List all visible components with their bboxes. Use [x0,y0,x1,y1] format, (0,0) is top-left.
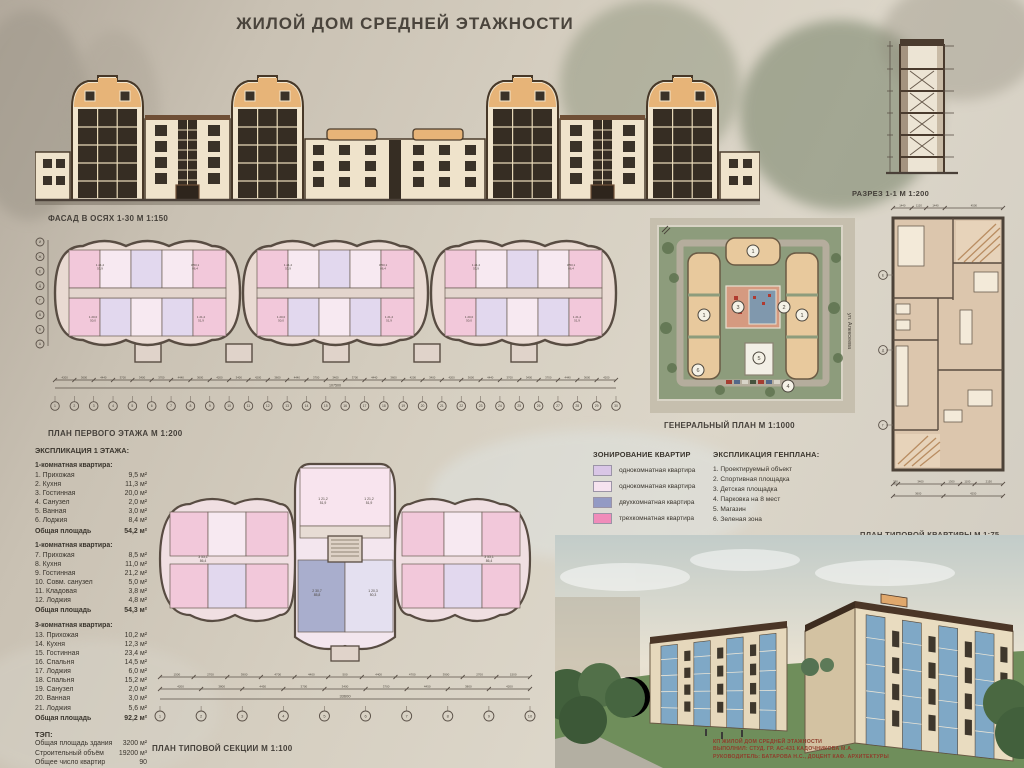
glass-strip [939,626,958,755]
axis-number: 1 [54,404,56,408]
axis-number: 15 [324,404,328,408]
window [928,636,935,653]
axis-number: 1 [159,713,162,718]
dim-value: 3400 [236,375,243,379]
facade-tower [232,76,303,200]
axis-letter: Г [882,423,884,427]
dim-value: 3400 [139,375,146,379]
titleblock-line: РУКОВОДИТЕЛЬ: БАТАРОВА Н.С., ДОЦЕНТ КАФ.… [713,754,1013,761]
window [965,641,972,658]
window [717,684,723,695]
axis-number: 29 [595,404,599,408]
genplan-legend-item: 5. Магазин [713,505,853,515]
explication-row: 3. Гостинная20,0 м² [35,489,147,498]
axis-number: 19 [401,404,405,408]
dim-value: 380 [893,479,898,483]
window [892,684,899,701]
tep-row: Общее число квартир90 [35,758,147,767]
window [1000,646,1007,662]
apartment-area: 50,0 [466,319,472,323]
room-name: 12. Лоджия [35,596,71,605]
room-name: 13. Прихожая [35,631,78,640]
genplan-marker-number: 2 [782,305,785,311]
dim-value: 3700 [506,375,513,379]
window [750,664,756,676]
explication-row: 13. Прихожая10,2 м² [35,631,147,640]
apartment-area: 51,9 [320,501,327,505]
room-name: 10. Совм. санузел [35,578,93,587]
dim-value: 3400 [342,684,349,688]
window [717,702,723,713]
room-name: 9. Гостинная [35,569,75,578]
dim-value: 4200 [216,375,223,379]
render-3d [555,535,1024,768]
room-name: 8. Кухня [35,560,61,569]
genplan-legend: ЭКСПЛИКАЦИЯ ГЕНПЛАНА: 1. Проектируемый о… [713,449,853,524]
room-name: 20. Ванная [35,694,70,703]
room-area: 11,0 м² [125,560,147,569]
dim-value: 3800 [218,684,225,688]
genplan-marker-number: 6 [696,368,699,374]
color-swatch [593,497,612,508]
dim-value: 4440 [294,375,301,379]
explication-body: 1-комнатная квартира:1. Прихожая9,5 м²2.… [35,461,147,767]
axis-number: 7 [406,713,409,718]
room-name: 15. Гостинная [35,649,79,658]
color-swatch [593,513,612,524]
facade-label: ФАСАД В ОСЯХ 1-30 М 1:150 [48,214,168,223]
apartment-area: 53,9 [285,267,291,271]
dim-value: 3700 [383,684,390,688]
axis-letter: Ж [39,255,42,259]
window [684,685,690,695]
dim-value: 3600 [81,375,88,379]
dim-value: 3700 [120,375,127,379]
facade-drawing [35,55,760,207]
explication-row: 8. Кухня11,0 м² [35,560,147,569]
section-drawing [880,33,964,185]
dim-value: 3600 [274,375,281,379]
axis-number: 14 [305,404,309,408]
room-area: 15,2 м² [125,676,147,685]
dim-value: 4200 [62,375,69,379]
dim-value: 4200 [255,375,262,379]
window [928,662,935,679]
explication-row: 7. Прихожая8,5 м² [35,551,147,560]
dim-value: 3600 [197,375,204,379]
explication-total: Общая площадь54,3 м² [35,606,147,615]
genplan-legend-item: 3. Детская площадка [713,485,853,495]
axis-number: 2 [73,404,75,408]
dim-value: 4400 [375,672,382,676]
explication-row: 17. Лоджия6,0 м² [35,667,147,676]
dim-value: 3700 [301,684,308,688]
first-floor-label: ПЛАН ПЕРВОГО ЭТАЖА М 1:200 [48,429,182,438]
facade-connector [560,115,645,200]
dim-value: 1500 [510,672,517,676]
apartment-area: 50,3 [370,593,377,597]
apartment-bottom-dims: 380340013001100215036004250 [891,479,1005,498]
apartment-area: 86,4 [486,559,493,563]
explication-row: 9. Гостинная21,2 м² [35,569,147,578]
dim-value: 4700 [274,672,281,676]
explication-row: 11. Кладовая3,8 м² [35,587,147,596]
room-name: 16. Спальня [35,658,74,667]
total-value: 54,3 м² [124,606,147,615]
dim-value: 2150 [986,479,993,483]
window [717,666,723,677]
explication-total: Общая площадь54,2 м² [35,527,147,536]
dim-value: 4440 [487,375,494,379]
dim-value: 1300 [948,479,955,483]
color-swatch [593,465,612,476]
plan-wing [431,241,616,345]
axis-number: 26 [537,404,541,408]
room-name: 11. Кладовая [35,587,77,596]
axis-number: 6 [364,713,367,718]
dim-value: 4200 [506,684,513,688]
dim-value: 3900 [443,672,450,676]
color-swatch [593,481,612,492]
genplan-legend-items: 1. Проектируемый объект2. Спортивная пло… [713,465,853,524]
axis-number: 10 [528,713,533,718]
dim-value: 4450 [424,684,431,688]
glass-strip [902,620,921,750]
room-area: 20,0 м² [125,489,147,498]
genplan-legend-item: 1. Проектируемый объект [713,465,853,475]
window [684,650,690,661]
dim-value: 3700 [545,375,552,379]
dim-value: 3900 [241,672,248,676]
tep-name: Общее число квартир [35,758,105,767]
room-area: 12,3 м² [125,640,147,649]
explication-row: 4. Санузел2,0 м² [35,498,147,507]
dim-value: 2700 [476,672,483,676]
tep-name: Общая площадь здания [35,739,112,748]
axis-letter: А [39,342,42,346]
room-name: 2. Кухня [35,480,61,489]
window [717,647,723,658]
dim-value: 500 [342,672,347,676]
axis-number: 9 [209,404,211,408]
tep-value: 90 [139,758,147,767]
explication-row: 2. Кухня11,3 м² [35,480,147,489]
room-area: 10,2 м² [125,631,147,640]
dim-value: 4200 [448,375,455,379]
apartment-area: 51,9 [574,319,580,323]
dim-value: 3700 [352,375,359,379]
window [684,668,690,678]
first-floor-dimension-line: 4200360044403700340037004440360042003400… [53,375,618,388]
axis-number: 20 [421,404,425,408]
glass-strip [866,615,885,747]
genplan-marker-number: 5 [757,356,760,362]
axis-number: 17 [363,404,367,408]
explication-row: 14. Кухня12,3 м² [35,640,147,649]
room-area: 23,4 м² [125,649,147,658]
explication-row: 6. Лоджия8,4 м² [35,516,147,525]
facade-tower [72,76,143,200]
glass-strip [661,644,677,724]
window [892,710,899,727]
apartment-area: 86,4 [380,267,386,271]
apartment-group-title: 1-комнатная квартира: [35,461,147,470]
window [928,688,935,705]
dim-value: 3400 [917,479,924,483]
dim-value: 1120 [916,203,922,207]
axis-number: 18 [382,404,386,408]
apartment-axes: ЕДГ [879,271,893,430]
axis-number: 10 [227,404,231,408]
dim-value: 3400 [332,375,339,379]
axis-number: 23 [479,404,483,408]
tep-title: ТЭП: [35,730,147,740]
explication-row: 18. Спальня15,2 м² [35,676,147,685]
dim-value: 4250 [970,491,977,495]
first-floor-plan: 1 21,253,93 53,186,41 20,050,01 21,251,9… [30,228,640,428]
dim-value: 2700 [207,672,214,676]
dim-value: 3400 [429,375,436,379]
total-label: Общая площадь [35,714,91,723]
window [750,702,756,714]
dim-value: 3400 [526,375,533,379]
explication-title: ЭКСПЛИКАЦИЯ 1 ЭТАЖА: [35,446,147,456]
facade-connector [145,115,230,200]
room-area: 14,5 м² [125,658,147,667]
dim-value: 3600 [468,375,475,379]
axis-number: 8 [189,404,191,408]
dim-value: 1440 [932,203,939,207]
axis-letter: Д [882,348,885,352]
axis-number: 22 [459,404,463,408]
axis-number: 4 [112,404,114,408]
genplan-marker-number: 4 [786,384,789,390]
apartment-area: 53,9 [97,267,103,271]
axis-number: 3 [93,404,95,408]
room-name: 17. Лоджия [35,667,71,676]
plan-wing [243,241,428,345]
window [965,693,972,709]
typical-section-plan: 1 21,251,91 21,251,93 53,186,43 53,186,4… [145,452,545,737]
apartment-area: 51,9 [366,501,373,505]
axis-number: 30 [614,404,618,408]
window [965,719,972,735]
zoning-label: однокомнатная квартира [619,482,695,492]
first-floor-axis-grid: 1234567891011121314151617181920212223242… [51,396,621,410]
dim-value: 4400 [308,672,315,676]
apartment-area: 86,4 [568,267,574,271]
room-name: 7. Прихожая [35,551,75,560]
apartment-group-title: 3-комнатная квартира: [35,621,147,630]
tep-row: Строительный объём19200 м³ [35,749,147,758]
room-name: 19. Санузел [35,685,73,694]
tep-row: Общая площадь здания3200 м² [35,739,147,748]
axis-number: 7 [170,404,172,408]
axis-number: 5 [131,404,133,408]
apartment-area: 51,9 [386,319,392,323]
axis-number: 28 [575,404,579,408]
axis-number: 8 [447,713,450,718]
plan-wing [55,241,240,345]
dim-value: 3800 [465,684,472,688]
facade-mid-block [305,129,485,200]
apartment-area: 86,4 [192,267,198,271]
total-label: Общая площадь [35,527,91,536]
axis-letter: Е [39,269,41,273]
dim-value: 3600 [915,491,922,495]
window [892,631,899,648]
explication-row: 5. Ванная3,0 м² [35,507,147,516]
total-dim: 33600 [339,693,351,698]
dim-value: 3700 [158,375,165,379]
explication-row: 16. Спальня14,5 м² [35,658,147,667]
apartment-plan: 1440112014404500 ЕДГ 3803400130011002150… [876,200,1024,522]
tep-value: 19200 м³ [119,749,147,758]
dim-value: 4440 [371,375,378,379]
apartment-top-dims: 1440112014404500 [891,203,1005,210]
room-name: 5. Ванная [35,507,66,516]
total-dim: 107500 [329,383,341,387]
room-name: 6. Лоджия [35,516,67,525]
window [965,667,972,684]
apartment-group-title: 1-комнатная квартира: [35,541,147,550]
facade-tower [487,76,558,200]
first-floor-vertical-axes: ИЖЕДГВБА [36,238,48,348]
dim-value: 4200 [177,684,184,688]
genplan-legend-title: ЭКСПЛИКАЦИЯ ГЕНПЛАНА: [713,449,853,460]
axis-letter: Г [39,298,41,302]
apartment-area: 53,9 [473,267,479,271]
axis-number: 12 [266,404,270,408]
parking-row [726,380,780,384]
dim-value: 4500 [971,203,978,207]
tep-name: Строительный объём [35,749,104,758]
tep-value: 3200 м² [123,739,147,748]
axis-letter: В [39,313,41,317]
glass-strip [760,633,776,730]
dim-value: 4200 [410,375,417,379]
glass-strip [727,637,743,728]
dim-value: 3600 [390,375,397,379]
axis-number: 11 [247,404,251,408]
typical-section-label: ПЛАН ТИПОВОЙ СЕКЦИИ М 1:100 [152,744,293,753]
dim-value: 3600 [584,375,591,379]
glass-strip [694,641,710,727]
axis-letter: И [39,240,42,244]
typical-section-axes: 12345678910 [155,706,535,721]
apartment-area: 50,0 [90,319,96,323]
facade-edge-left [35,152,70,200]
axis-number: 6 [151,404,153,408]
room-area: 21,2 м² [125,569,147,578]
genplan-marker-number: 1 [800,313,803,319]
room-name: 4. Санузел [35,498,70,507]
axis-number: 9 [488,713,491,718]
general-plan: 11123456 ул. Алексеева [650,218,855,413]
room-name: 18. Спальня [35,676,74,685]
dim-value: 4440 [178,375,185,379]
axis-letter: Е [882,273,885,277]
room-area: 11,3 м² [125,480,147,489]
facade-tower [647,76,718,200]
genplan-marker-number: 1 [702,313,705,319]
zoning-label: трехкомнатная квартира [619,514,694,524]
window [928,715,935,732]
axis-number: 5 [323,713,326,718]
total-value: 92,2 м² [124,714,147,723]
total-value: 54,2 м² [124,527,147,536]
dim-value: 1440 [899,203,906,207]
explication: ЭКСПЛИКАЦИЯ 1 ЭТАЖА: 1-комнатная квартир… [35,446,147,767]
axis-number: 24 [498,404,502,408]
explication-row: 12. Лоджия4,8 м² [35,596,147,605]
room-name: 3. Гостинная [35,489,75,498]
zoning-label: двухкомнатная квартира [619,498,694,508]
dim-value: 1100 [964,479,970,483]
dim-value: 4200 [603,375,610,379]
zoning-label: однокомнатная квартира [619,466,695,476]
axis-letter: Б [39,328,41,332]
typical-section-dims: 1500270039004700440050044004700390027001… [158,672,532,699]
dim-value: 4700 [409,672,416,676]
apartment-area: 85,8 [314,593,321,597]
dim-value: 4440 [100,375,107,379]
genplan-marker-number: 1 [751,249,754,255]
explication-row: 19. Санузел2,0 м² [35,685,147,694]
general-plan-label: ГЕНЕРАЛЬНЫЙ ПЛАН М 1:1000 [664,421,795,430]
axis-letter: Д [39,284,42,288]
section-label: РАЗРЕЗ 1-1 М 1:200 [852,189,929,198]
explication-row: 10. Совм. санузел5,0 м² [35,578,147,587]
room-name: 21. Лоджия [35,704,71,713]
apartment-area: 51,9 [198,319,204,323]
dim-value: 4440 [565,375,572,379]
axis-number: 2 [200,713,203,718]
room-name: 14. Кухня [35,640,65,649]
titleblock-line: ВЫПОЛНИЛ: СТУД. ГР. АС-431 КАДОЧНИКОВА М… [713,746,1013,753]
axis-number: 16 [343,404,347,408]
genplan-legend-item: 2. Спортивная площадка [713,475,853,485]
apartment-area: 86,4 [200,559,207,563]
genplan-marker-number: 3 [736,305,739,311]
window [684,701,690,711]
axis-number: 21 [440,404,444,408]
window [892,657,899,674]
sheet: { "page": { "title": "ЖИЛОЙ ДОМ СРЕДНЕЙ … [0,0,1024,768]
explication-row: 1. Прихожая9,5 м² [35,471,147,480]
genplan-legend-item: 6. Зеленая зона [713,515,853,525]
explication-total: Общая площадь92,2 м² [35,714,147,723]
explication-row: 21. Лоджия5,6 м² [35,704,147,713]
axis-number: 13 [285,404,289,408]
dim-value: 1500 [173,672,180,676]
room-name: 1. Прихожая [35,471,75,480]
explication-row: 15. Гостинная23,4 м² [35,649,147,658]
titleblock-line: КП ЖИЛОЙ ДОМ СРЕДНЕЙ ЭТАЖНОСТИ [713,739,1013,746]
axis-number: 27 [556,404,560,408]
sport-court [749,290,776,324]
axis-number: 25 [517,404,521,408]
street-label: ул. Алексеева [846,313,852,350]
facade-edge-right [720,152,760,200]
dim-value: 4450 [259,684,266,688]
page-title: ЖИЛОЙ ДОМ СРЕДНЕЙ ЭТАЖНОСТИ [235,14,575,34]
genplan-legend-item: 4. Парковка на 8 мест [713,495,853,505]
dim-value: 3700 [313,375,320,379]
window [750,683,756,695]
axis-number: 3 [241,713,244,718]
axis-number: 4 [282,713,285,718]
